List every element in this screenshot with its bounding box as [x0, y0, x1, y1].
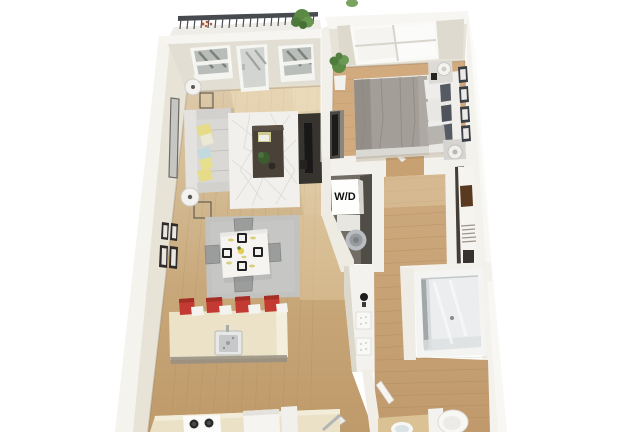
svg-text:W/D: W/D: [334, 191, 355, 203]
